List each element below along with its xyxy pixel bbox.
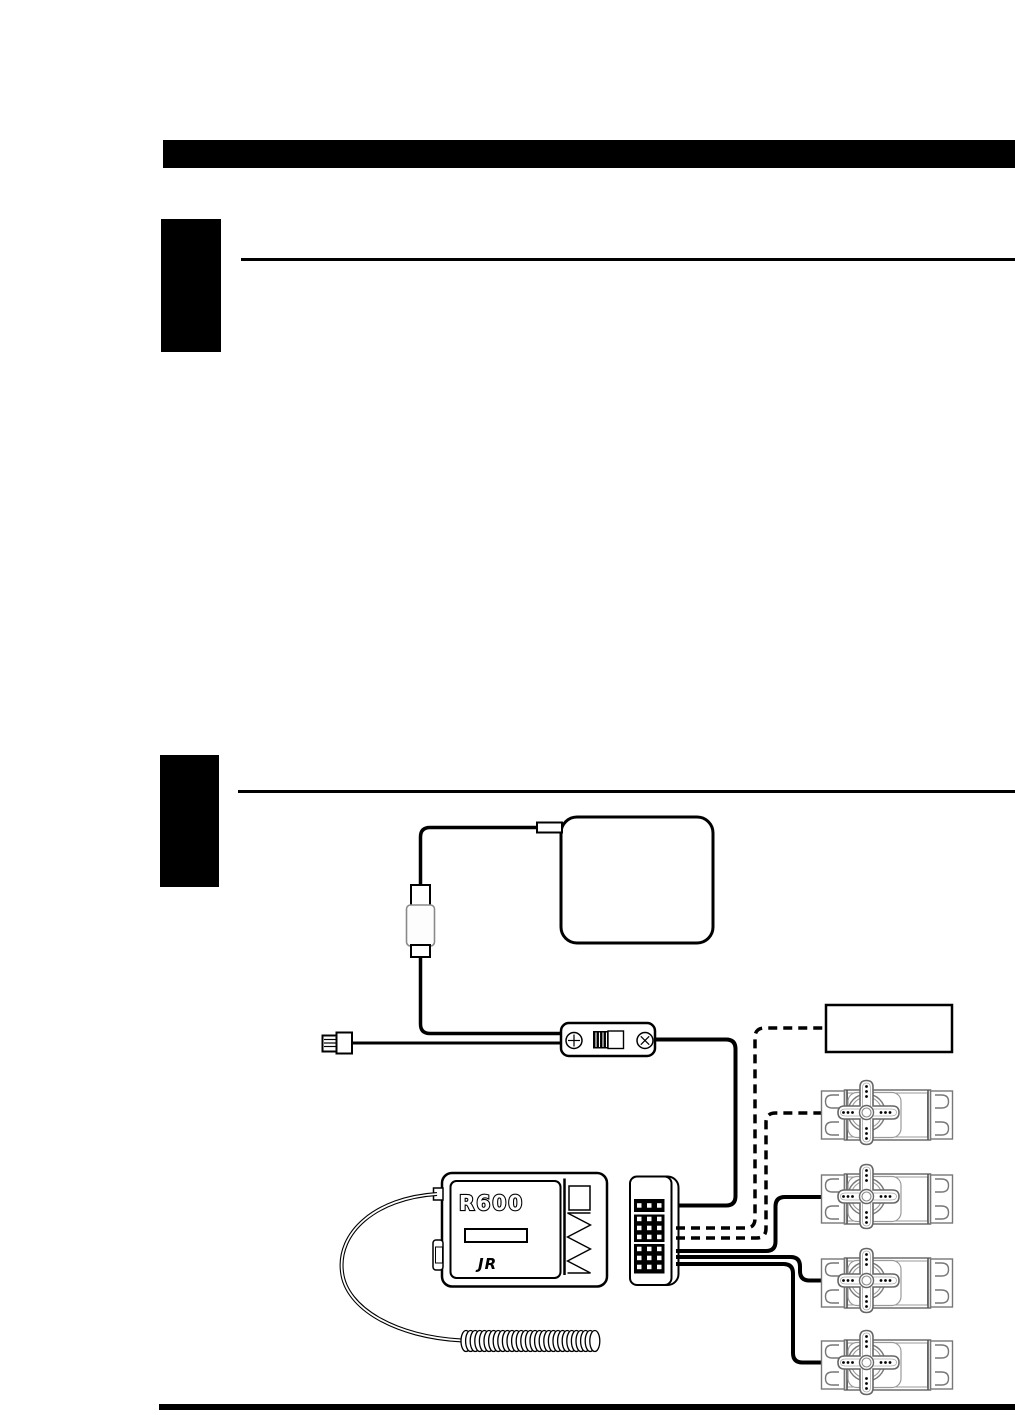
screw-left-icon <box>566 1033 582 1049</box>
switch-slider <box>593 1031 624 1049</box>
pin-groups <box>634 1199 665 1274</box>
receiver: R600 JR <box>433 1173 607 1287</box>
servo-4 <box>822 1331 953 1395</box>
label-window <box>465 1229 527 1242</box>
connector-block <box>630 1177 679 1286</box>
manual-page: R600 JR <box>0 0 1015 1415</box>
connector-to-switch-wire <box>421 957 564 1034</box>
charge-plug <box>323 1033 353 1054</box>
servo-2 <box>822 1165 953 1229</box>
battery-connector-stub <box>537 823 562 833</box>
side-connector-stub <box>433 1240 443 1270</box>
servo-3 <box>822 1249 953 1313</box>
wiring-diagram: R600 JR <box>0 0 1015 1415</box>
crystal <box>569 1186 590 1210</box>
receiver-model-label: R600 <box>459 1191 524 1215</box>
antenna-coil <box>461 1331 600 1352</box>
battery-wire <box>421 828 538 886</box>
inline-connector <box>407 885 435 957</box>
servo-1 <box>822 1081 953 1145</box>
brand-logo: JR <box>475 1255 497 1273</box>
aux-box <box>826 1005 952 1052</box>
battery-pack <box>537 817 713 943</box>
servo3-wire <box>676 1257 823 1281</box>
switch-harness <box>561 1023 655 1056</box>
servo1-wire-dashed <box>676 1113 823 1238</box>
screw-right-icon <box>637 1033 653 1049</box>
